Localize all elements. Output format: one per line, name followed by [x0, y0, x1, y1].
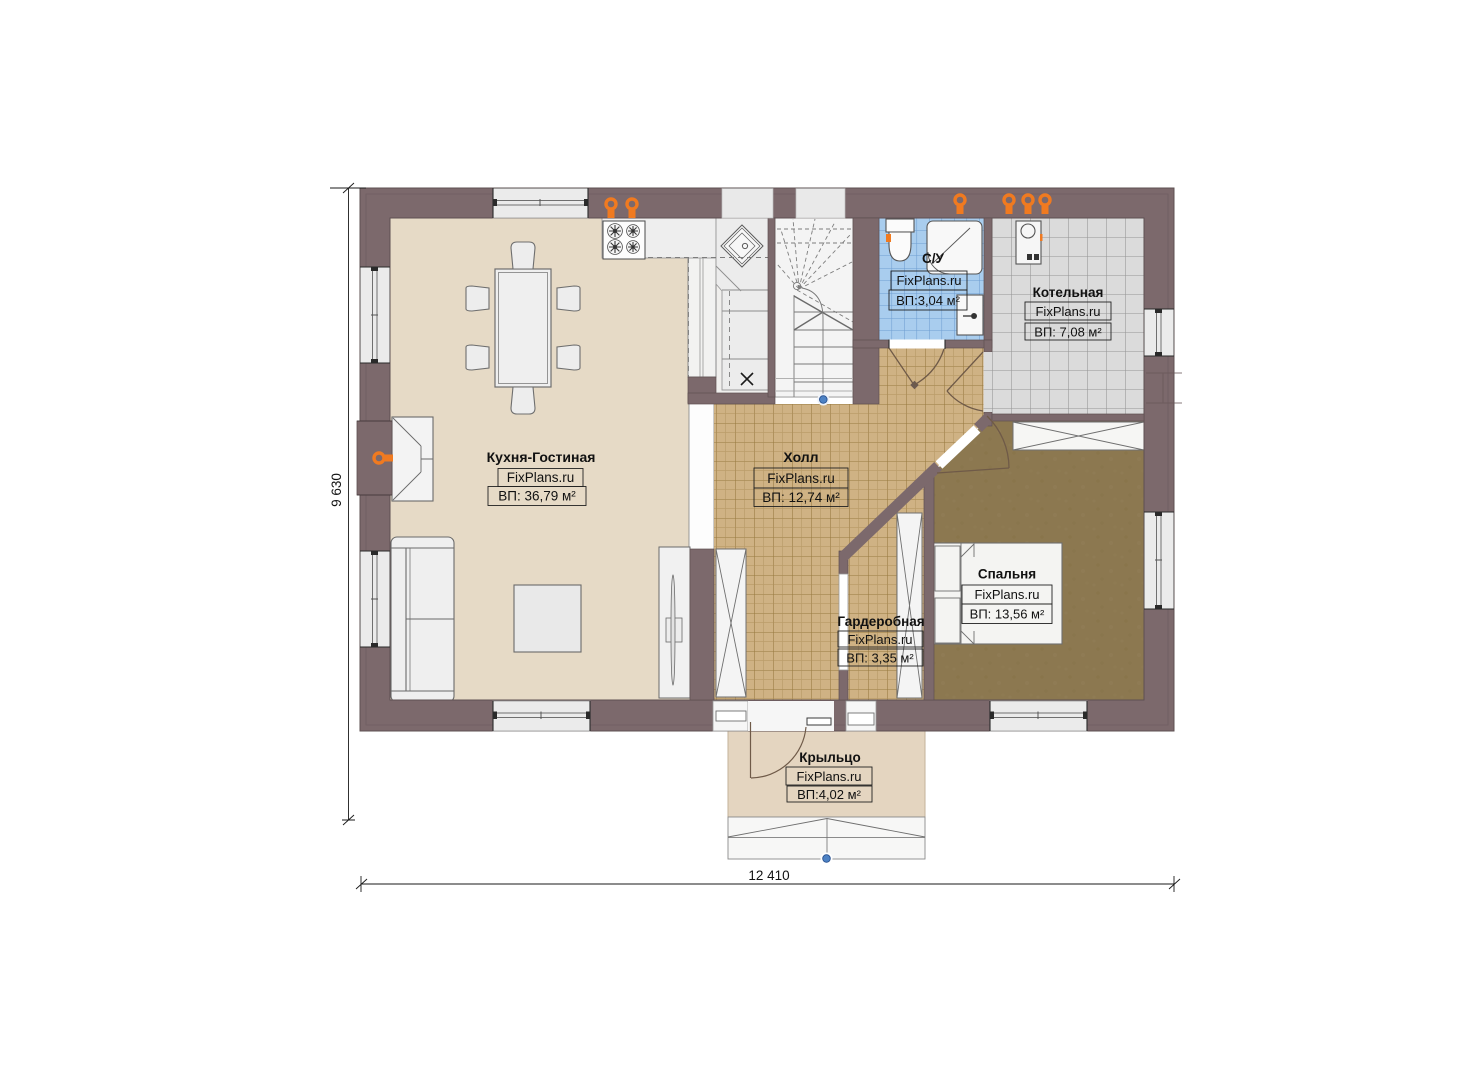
- svg-text:С/У: С/У: [922, 251, 945, 266]
- svg-text:FixPlans.ru: FixPlans.ru: [507, 470, 575, 485]
- svg-text:FixPlans.ru: FixPlans.ru: [1035, 304, 1100, 319]
- svg-text:ВП:4,02 м²: ВП:4,02 м²: [797, 787, 861, 802]
- svg-text:ВП: 36,79 м²: ВП: 36,79 м²: [498, 489, 576, 504]
- svg-text:Холл: Холл: [783, 449, 818, 465]
- svg-text:Крыльцо: Крыльцо: [799, 750, 860, 765]
- svg-text:ВП: 12,74 м²: ВП: 12,74 м²: [762, 490, 840, 505]
- svg-text:FixPlans.ru: FixPlans.ru: [974, 587, 1039, 602]
- svg-text:FixPlans.ru: FixPlans.ru: [847, 632, 912, 647]
- svg-text:ВП: 3,35 м²: ВП: 3,35 м²: [846, 651, 914, 666]
- svg-text:ВП: 7,08 м²: ВП: 7,08 м²: [1034, 325, 1102, 340]
- svg-text:Гардеробная: Гардеробная: [837, 614, 924, 629]
- svg-text:FixPlans.ru: FixPlans.ru: [796, 769, 861, 784]
- svg-text:ВП:3,04 м²: ВП:3,04 м²: [896, 293, 960, 308]
- svg-text:Спальня: Спальня: [978, 567, 1036, 582]
- svg-text:Котельная: Котельная: [1033, 285, 1104, 300]
- svg-text:FixPlans.ru: FixPlans.ru: [767, 471, 835, 486]
- svg-text:12 410: 12 410: [748, 868, 789, 883]
- svg-text:9 630: 9 630: [329, 473, 344, 507]
- svg-text:FixPlans.ru: FixPlans.ru: [896, 273, 961, 288]
- svg-text:ВП: 13,56 м²: ВП: 13,56 м²: [970, 607, 1045, 622]
- svg-text:Кухня-Гостиная: Кухня-Гостиная: [487, 449, 596, 465]
